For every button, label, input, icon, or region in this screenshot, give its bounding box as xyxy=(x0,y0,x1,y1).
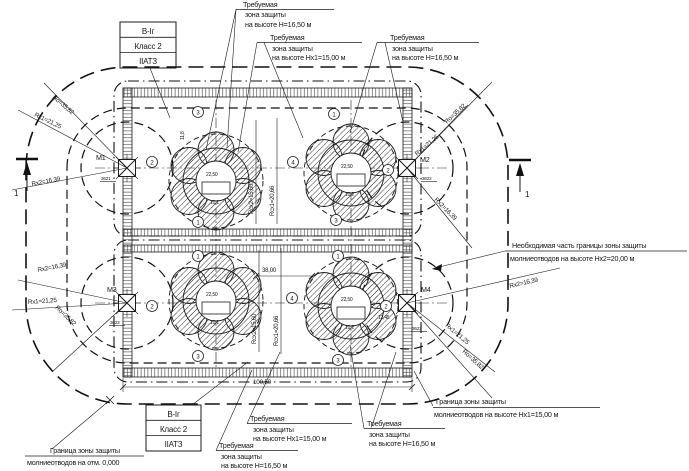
dim-tank-dia: 22,50 xyxy=(341,164,353,170)
drawing-canvas: 22,50 22,50 22,50 22,50 10,1 10,2 10,1 1… xyxy=(0,0,689,471)
label-boundary-zero-l1: Граница зоны защиты xyxy=(50,446,120,455)
dim-10-2: 10,2 xyxy=(345,325,354,331)
mast-label-m2: М2 xyxy=(420,155,430,164)
label-required-hx1-bottom-l3: на высоте Hx1=15,00 м xyxy=(253,434,327,443)
dim-38-00: 38,00 xyxy=(262,268,277,274)
dim-11-8: 11,8 xyxy=(180,131,186,140)
dim-10-1: 10,1 xyxy=(210,200,219,206)
label-boundary-hx1-l1: Граница зоны защиты xyxy=(436,397,506,406)
dim-10-1: 10,1 xyxy=(210,320,219,326)
class-box-line2: Класс 2 xyxy=(134,42,162,51)
class-box-line2: Класс 2 xyxy=(160,425,188,434)
mast-mark-m4: 3623 xyxy=(412,326,422,331)
label-boundary-zero-l2: молниеотводов на отм. 0,000 xyxy=(27,458,119,467)
dim-tank-dia: 22,50 xyxy=(206,172,218,178)
label-required-h-bottom-l1: Требуемая xyxy=(219,441,254,450)
lightning-protection-plan: 22,50 22,50 22,50 22,50 10,1 10,2 10,1 1… xyxy=(0,0,689,471)
label-required-h-top2-l1: Требуемая xyxy=(390,33,425,42)
label-required-h-top-l3: на высоте H=16,50 м xyxy=(245,20,311,29)
mast-mark-m3: 3623 xyxy=(110,320,120,325)
label-required-hx1-top-l3: на высоте Hx1=15,00 м xyxy=(272,53,346,62)
mast-label-m3: М3 xyxy=(107,285,117,294)
dim-tank-dia: 22,50 xyxy=(341,297,353,303)
dim-10-2: 10,2 xyxy=(345,192,354,198)
label-required-h-top2-l3: на высоте H=16,50 м xyxy=(392,53,458,62)
label-necessary-part-l2: молниеотводов на высоте Hx2=20,00 м xyxy=(510,254,634,263)
label-required-h-top-l2: зона защиты xyxy=(245,10,286,19)
dim-tank-dia: 22,50 xyxy=(206,292,218,298)
label-required-h-top2-l2: зона защиты xyxy=(392,44,433,53)
class-box-line3: IIАТЗ xyxy=(139,57,157,66)
mast-label-m4: М4 xyxy=(421,285,431,294)
class-box-line1: В-Iг xyxy=(142,27,155,36)
label-necessary-part-l1: Необходимая часть границы зоны защиты xyxy=(512,241,646,250)
label-required-h-bottom-l3: на высоте H=16,50 м xyxy=(221,461,287,470)
label-required-hx1-top-l2: зона защиты xyxy=(272,44,313,53)
dim-rcx1-bottom: Rсх1=20,66 xyxy=(274,315,280,346)
label-required-hx1-bottom-l1: Требуемая xyxy=(250,414,285,423)
dim-rcx1-top: Rсх1=20,66 xyxy=(270,185,276,216)
class-box-line3: IIАТЗ xyxy=(165,440,183,449)
label-required-hx1-top-l1: Требуемая xyxy=(270,33,305,42)
dim-100-50: 100,50 xyxy=(253,379,272,386)
label-required-h-bottom-l2: зона защиты xyxy=(221,452,262,461)
label-required-h-bottom2-l1: Требуемая xyxy=(367,419,402,428)
dim-12-45: 12,45 xyxy=(378,315,390,321)
label-boundary-hx1-l2: молниеотводов на высоте Hx1=15,00 м xyxy=(434,410,558,419)
dim-rcx2-top: Rсх2=15,60 xyxy=(249,183,255,214)
class-box-line1: В-Iг xyxy=(167,410,180,419)
dim-rcx2-bottom: Rсх2=15,60 xyxy=(252,313,258,344)
label-required-h-bottom2-l3: на высоте H=16,50 м xyxy=(369,439,435,448)
label-required-hx1-bottom-l2: зона защиты xyxy=(253,425,294,434)
label-required-h-bottom2-l2: зона защиты xyxy=(369,430,410,439)
mast-mark-m2: 3622 xyxy=(422,176,432,181)
label-required-h-top-l1: Требуемая xyxy=(243,0,278,9)
mast-mark-m1: 3621 xyxy=(101,176,111,181)
